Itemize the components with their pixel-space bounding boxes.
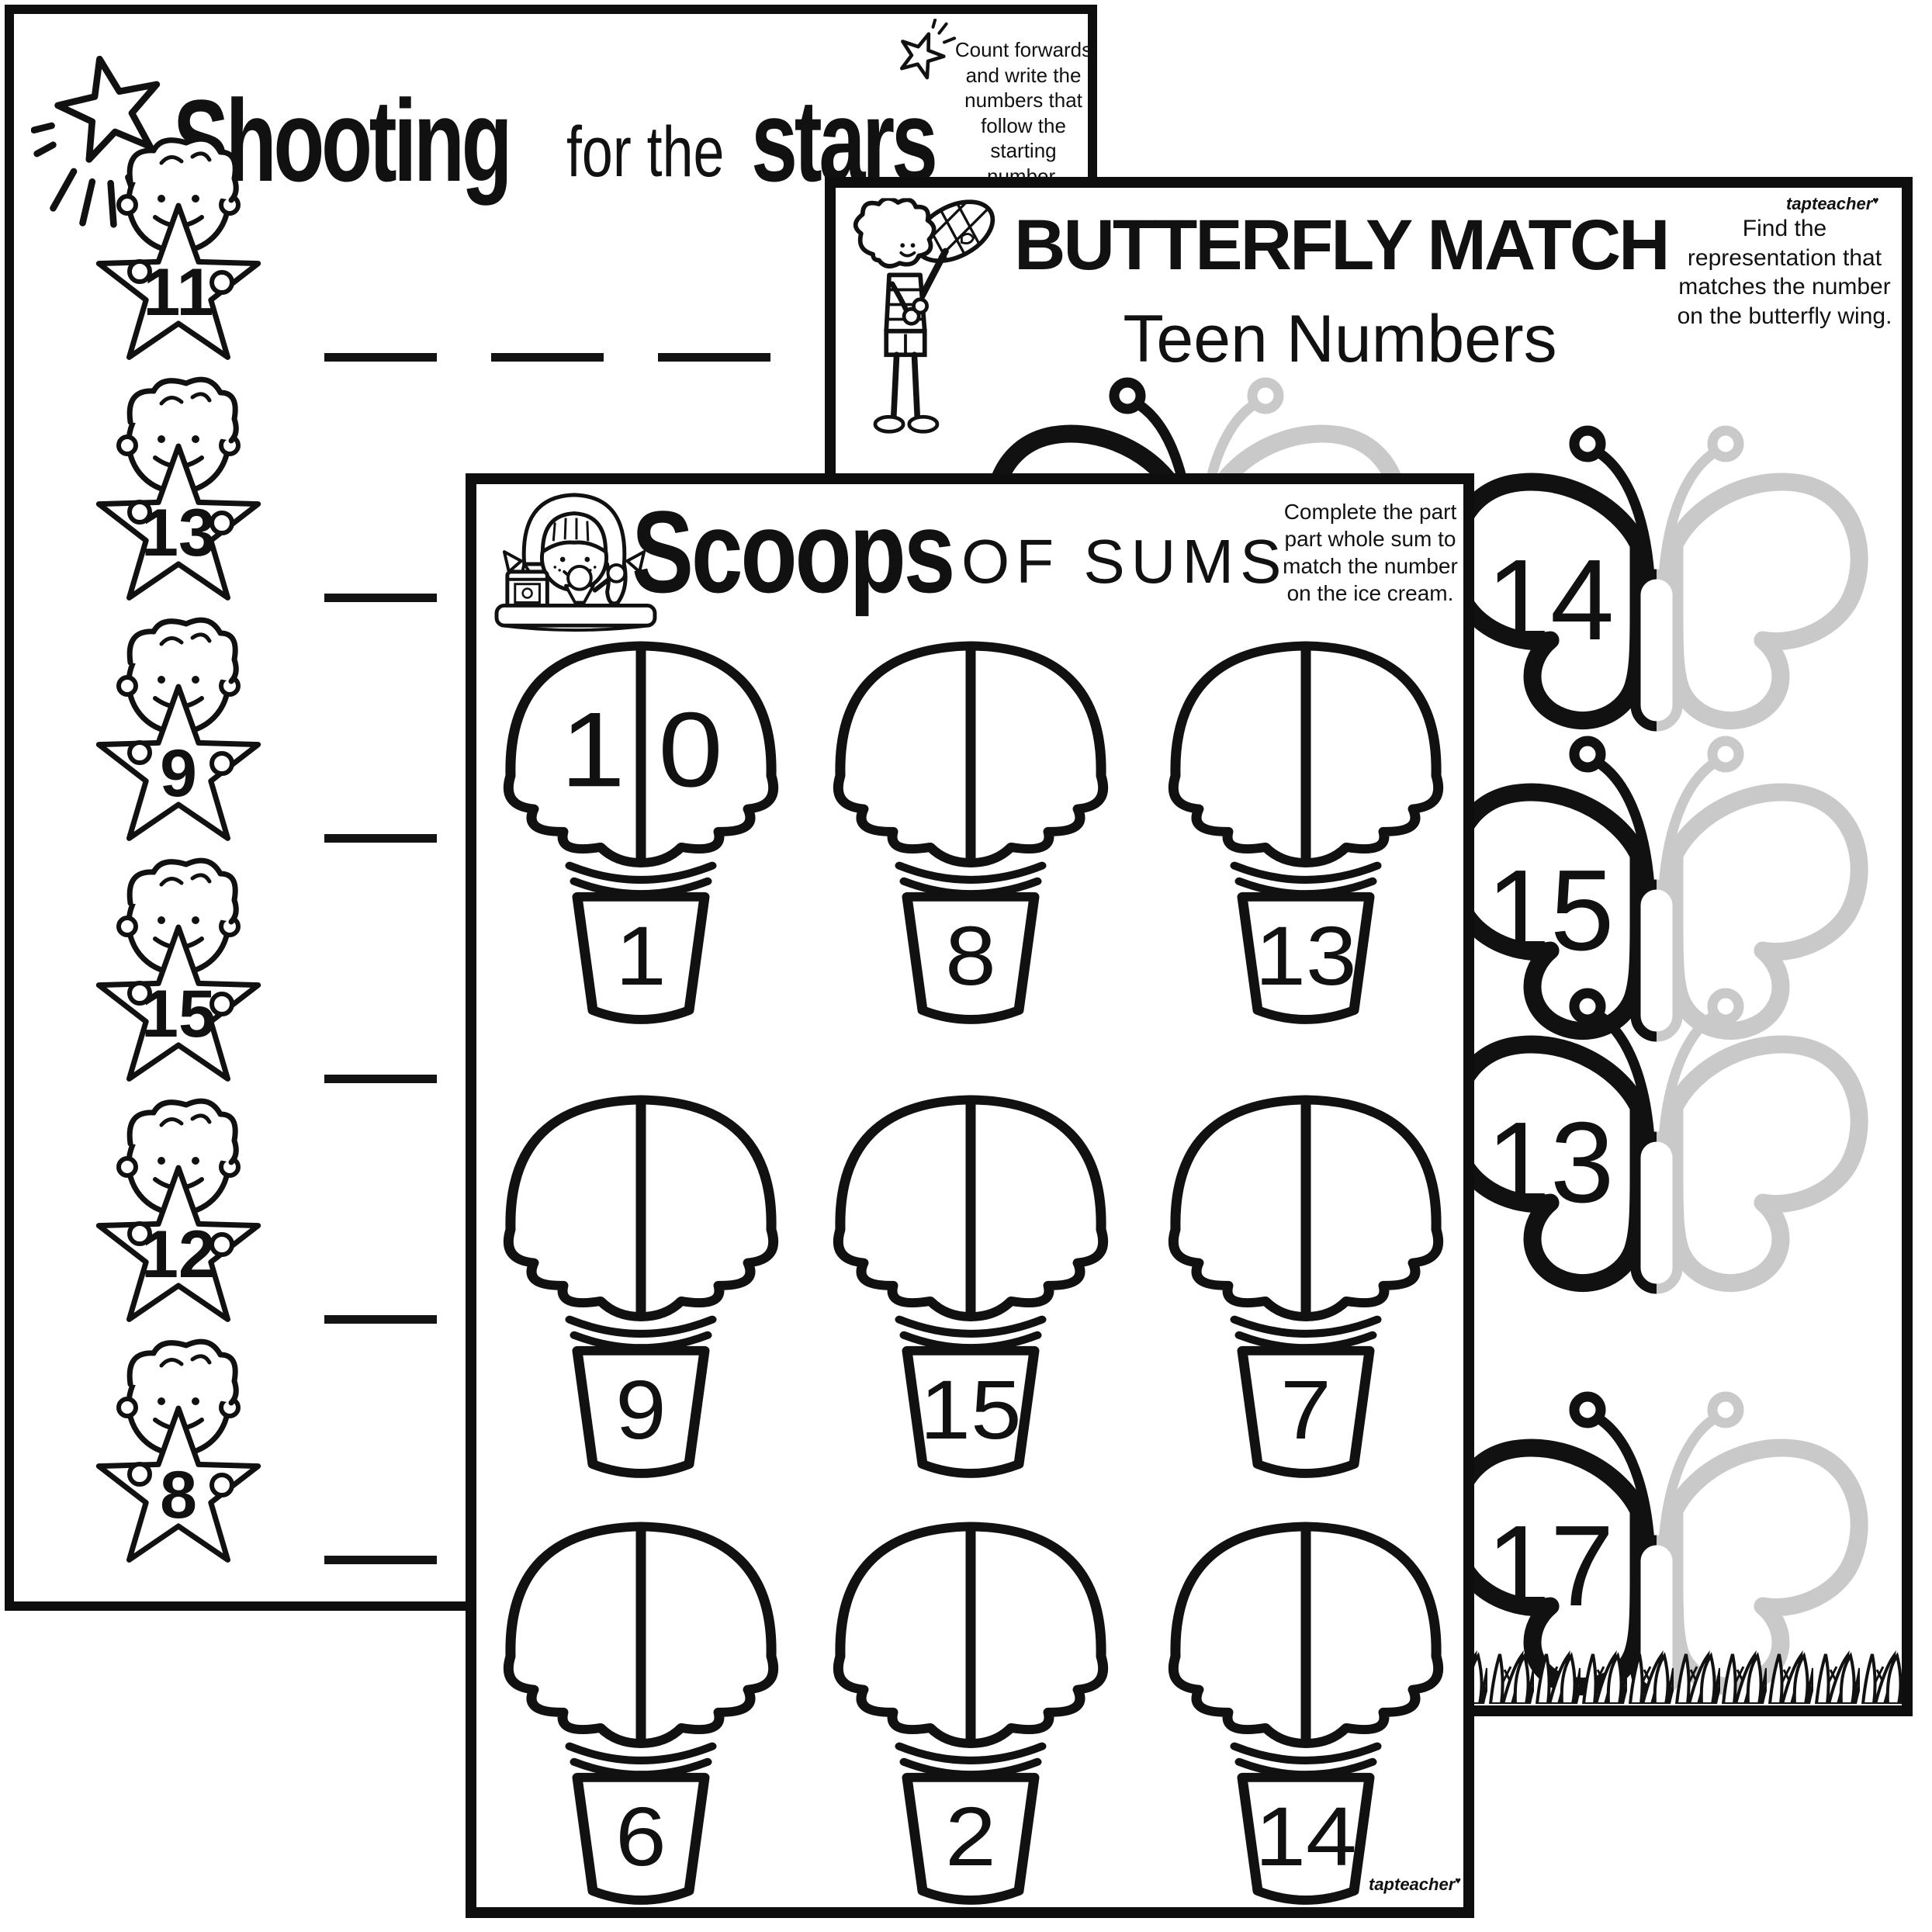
kid-holding-star-icon: 12 <box>45 1092 309 1349</box>
butterfly-number: 15 <box>1487 847 1615 975</box>
whole-number: 14 <box>1255 1790 1356 1883</box>
part-right[interactable]: 0 <box>658 691 722 809</box>
ice-cream-cone-item[interactable]: 2 <box>808 1497 1134 1908</box>
whole-number: 8 <box>945 909 996 1002</box>
whole-number: 1 <box>615 909 667 1002</box>
star-number: 12 <box>141 1217 216 1292</box>
star-number: 13 <box>141 496 216 570</box>
ice-cream-cone-item[interactable]: 15 <box>808 1070 1134 1481</box>
part-left[interactable]: 1 <box>560 691 625 809</box>
whole-number: 6 <box>615 1790 667 1883</box>
butterfly-instructions: Find the representation that matches the… <box>1675 214 1894 331</box>
brand-text: tapteacher <box>1369 1875 1455 1894</box>
kid-holding-star-icon: 15 <box>45 852 309 1108</box>
worksheet-scoops-of-sums: Scoops OF SUMS Complete the part part wh… <box>466 473 1474 1918</box>
whole-number: 13 <box>1255 909 1356 1002</box>
small-star-icon <box>889 19 961 85</box>
stars-instructions: Count forwards and write the numbers tha… <box>954 37 1092 189</box>
star-row: 11 <box>45 130 309 390</box>
star-row: 15 <box>45 852 309 1112</box>
scoops-instructions: Complete the part part whole sum to matc… <box>1277 498 1463 607</box>
star-row: 12 <box>45 1092 309 1352</box>
scoops-title-light: OF SUMS <box>961 531 1287 593</box>
star-row: 8 <box>45 1333 309 1593</box>
ice-cream-cone-item[interactable]: 8 <box>808 616 1134 1027</box>
star-number: 11 <box>144 255 214 330</box>
star-number: 9 <box>160 736 197 811</box>
whole-number: 15 <box>919 1363 1021 1456</box>
brand-text: tapteacher <box>1786 194 1872 213</box>
star-number: 15 <box>141 977 216 1051</box>
scoops-title-bold: Scoops <box>632 493 953 610</box>
brand-logo: tapteacher♥ <box>1369 1875 1461 1895</box>
butterfly-number: 13 <box>1487 1099 1615 1227</box>
butterfly-subtitle: Teen Numbers <box>1014 306 1666 372</box>
whole-number: 9 <box>615 1363 667 1456</box>
stars-title-script: for the <box>566 116 724 188</box>
ice-cream-cone-item[interactable]: 7 <box>1143 1070 1469 1481</box>
star-row: 9 <box>45 611 309 871</box>
whole-number: 7 <box>1280 1363 1331 1456</box>
butterfly-number: 17 <box>1487 1502 1615 1630</box>
ice-cream-cone-item[interactable]: 13 <box>1143 616 1469 1027</box>
butterfly-item[interactable]: 13 <box>1435 983 1878 1301</box>
kid-holding-star-icon: 8 <box>45 1333 309 1589</box>
star-row: 13 <box>45 371 309 631</box>
brand-heart-icon: ♥ <box>1872 194 1878 206</box>
star-number: 8 <box>160 1458 197 1532</box>
brand-heart-icon: ♥ <box>1455 1875 1461 1886</box>
kid-holding-star-icon: 13 <box>45 371 309 627</box>
kid-holding-star-icon: 11 <box>45 130 309 386</box>
ice-cream-cone-item[interactable]: 9 <box>478 1070 804 1481</box>
ice-cream-cone-item[interactable]: 1 0 1 <box>478 616 804 1027</box>
ice-cream-cone-item[interactable]: 6 <box>478 1497 804 1908</box>
butterfly-title: BUTTERFLY MATCH <box>1014 209 1666 281</box>
brand-logo: tapteacher♥ <box>1786 194 1879 214</box>
ice-cream-cone-item[interactable]: 14 <box>1143 1497 1469 1908</box>
whole-number: 2 <box>945 1790 996 1883</box>
butterfly-item[interactable]: 14 <box>1435 421 1878 739</box>
butterfly-number: 14 <box>1487 536 1615 664</box>
kid-holding-star-icon: 9 <box>45 611 309 867</box>
